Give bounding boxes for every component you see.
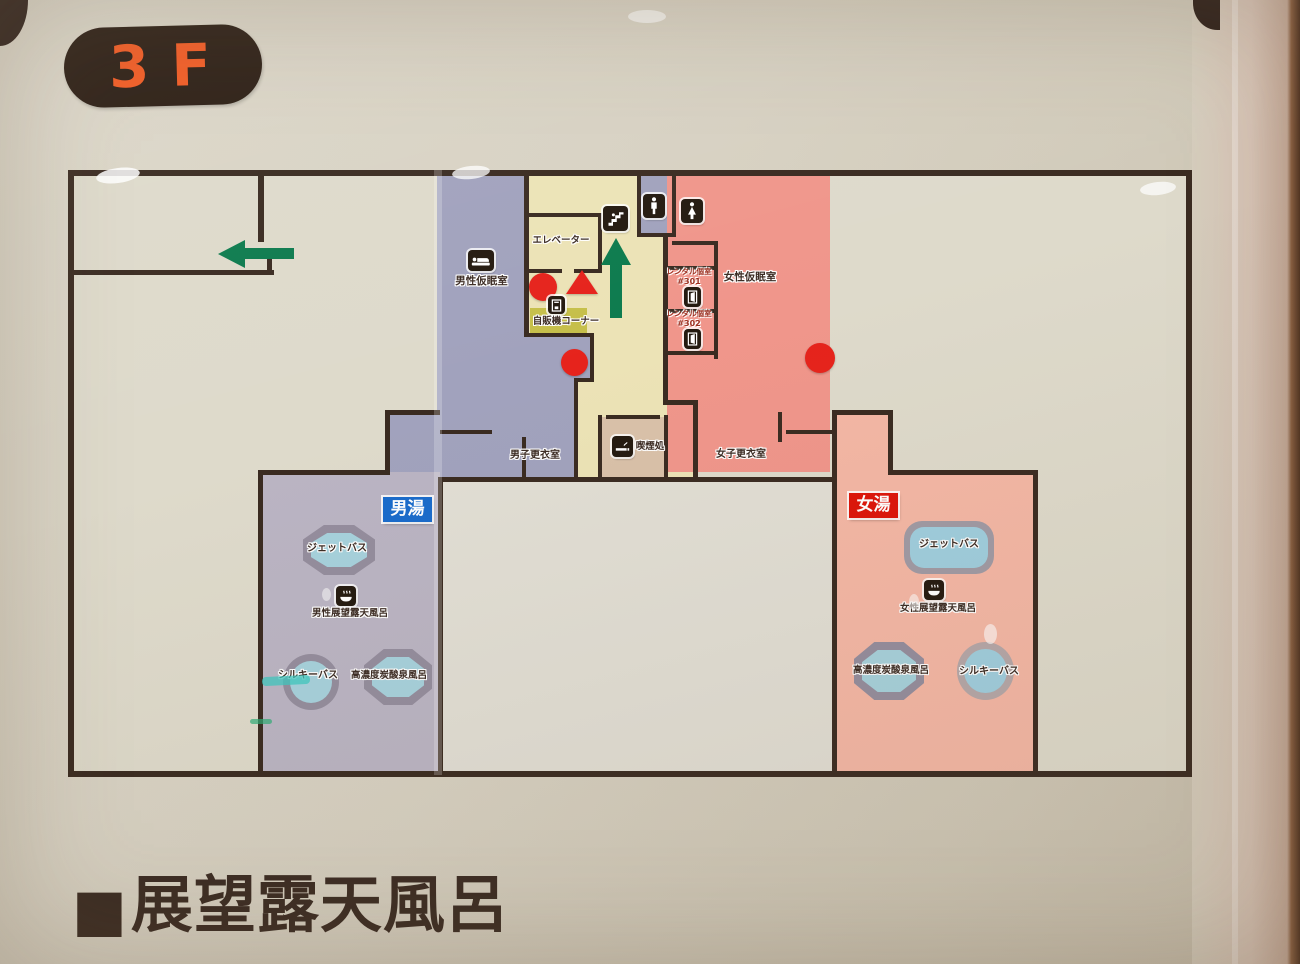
rental-301-number: #301 — [664, 277, 714, 286]
up-arrow-icon — [599, 238, 633, 320]
vending-machine-icon — [548, 296, 565, 314]
label-male-changing-room: 男子更衣室 — [504, 451, 566, 462]
wall — [68, 170, 1192, 176]
wall — [68, 270, 274, 275]
wall — [1033, 470, 1038, 777]
floor-badge-label: 3F — [92, 30, 234, 102]
rental-302-number: #302 — [664, 319, 714, 328]
wall — [672, 241, 718, 245]
legend-bullet: ■ — [72, 881, 127, 939]
stairs-icon — [603, 206, 628, 231]
wall — [666, 351, 716, 355]
wall — [385, 410, 390, 475]
wall — [598, 415, 602, 477]
label-female-changing-room: 女子更衣室 — [710, 450, 772, 461]
label-rental-room-302: レンタル個室 #302 — [664, 310, 714, 328]
floor-badge: 3F — [63, 23, 263, 108]
onsen-bath-icon — [924, 580, 944, 600]
wall — [438, 477, 837, 482]
wall — [385, 410, 440, 415]
rental-302-name: レンタル個室 — [664, 310, 714, 319]
label-female-nap-room: 女性仮眠室 — [702, 272, 798, 283]
label-rental-room-301: レンタル個室 #301 — [664, 268, 714, 286]
label-mens-observation-bath: 男性展望露天風呂 — [306, 609, 394, 619]
woman-toilet-icon — [681, 199, 703, 223]
left-arrow-icon — [218, 238, 298, 270]
red-triangle-marker — [566, 270, 598, 294]
wall — [714, 241, 718, 359]
legend-title: 展望露天風呂 — [131, 872, 509, 939]
wall — [258, 470, 263, 777]
wall — [590, 333, 594, 382]
glare — [628, 10, 666, 23]
wall — [832, 410, 893, 415]
onsen-bath-icon — [336, 586, 356, 606]
label-mens-jet-bath: ジェットバス — [302, 544, 372, 555]
frame-corner-top-left — [0, 0, 28, 46]
label-womens-carbonated-bath: 高濃度炭酸泉風呂 — [845, 666, 937, 676]
wall — [68, 170, 74, 777]
wall — [68, 771, 1192, 777]
wall — [258, 170, 264, 242]
label-womens-observation-bath: 女性展望露天風呂 — [894, 604, 982, 614]
plan-courtyard — [443, 482, 832, 772]
door-icon — [684, 329, 701, 349]
wall — [786, 430, 832, 434]
label-womens-jet-bath: ジェットバス — [913, 540, 985, 551]
label-elevator: エレベーター — [528, 236, 594, 246]
legend: ■ 展望露天風呂 — [72, 872, 509, 939]
label-vending-corner: 自販機コーナー — [528, 317, 604, 327]
zone-purple-step — [388, 413, 437, 477]
wall — [663, 400, 697, 405]
zone-womens-bath-step — [832, 412, 888, 473]
glass-reflection-streak — [434, 170, 442, 775]
red-circle-marker — [561, 349, 588, 376]
bed-icon — [468, 250, 494, 271]
wall — [524, 213, 602, 217]
wall — [888, 410, 893, 475]
wall — [574, 378, 578, 477]
label-mens-carbonated-bath: 高濃度炭酸泉風呂 — [346, 671, 432, 681]
rental-301-name: レンタル個室 — [664, 268, 714, 277]
wall — [637, 233, 676, 237]
man-toilet-icon — [643, 194, 665, 218]
signboard-photo: { "floor_badge": { "label": "3F" }, "pla… — [0, 0, 1300, 964]
zone-purple-low — [437, 380, 576, 477]
wall — [524, 333, 594, 337]
wall — [672, 175, 676, 237]
wall — [440, 430, 492, 434]
mens-bath-zone-tag: 男湯 — [383, 497, 432, 522]
wall — [693, 400, 698, 477]
green-reflection — [250, 719, 272, 724]
glass-reflection-streak — [1232, 0, 1238, 964]
wall — [258, 470, 390, 475]
label-smoking-area: 喫煙処 — [632, 442, 668, 452]
wall — [1186, 170, 1192, 777]
wall — [888, 470, 1038, 475]
smoking-icon — [612, 436, 633, 457]
door-icon — [684, 287, 701, 307]
red-circle-marker — [805, 343, 835, 373]
wall — [832, 410, 837, 777]
womens-bath-zone-tag: 女湯 — [849, 493, 898, 518]
frame-right-reflection — [1192, 0, 1300, 964]
wall — [606, 415, 660, 419]
label-womens-silky-bath: シルキーバス — [953, 667, 1025, 678]
wall — [778, 412, 782, 442]
label-male-nap-room: 男性仮眠室 — [434, 276, 529, 287]
wall — [524, 175, 529, 337]
wall — [637, 175, 641, 237]
